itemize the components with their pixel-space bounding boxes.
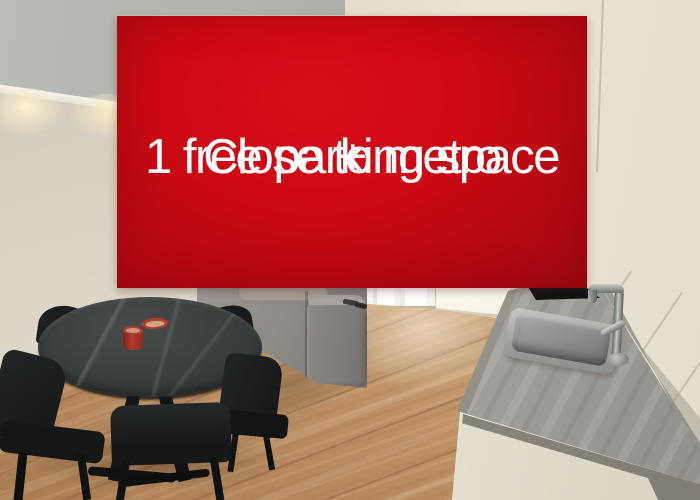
sink-basin — [511, 313, 612, 367]
banner-line-2: Close to metro — [203, 125, 501, 190]
promo-banner: 1 free parking space + Close to metro — [117, 16, 587, 288]
chair-leg — [210, 457, 225, 500]
red-cup — [123, 326, 143, 350]
red-cup — [141, 317, 170, 346]
faucet-spout-tip — [588, 290, 597, 303]
sofa-armrest-front — [307, 305, 367, 388]
dining-chair — [0, 348, 122, 500]
chair-leg — [263, 434, 275, 470]
dining-chair — [105, 402, 240, 500]
cup-interior — [126, 328, 140, 333]
faucet-base — [607, 353, 629, 366]
chair-leg — [13, 452, 27, 500]
chair-seat — [0, 420, 106, 464]
apartment-photo: 1 free parking space + Close to metro — [0, 0, 700, 500]
